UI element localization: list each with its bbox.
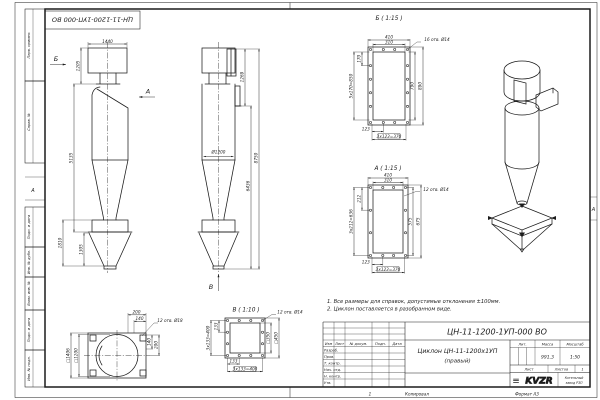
view-v-title: В ( 1:10 ) [232, 308, 259, 314]
tb-sheet-label: Лист [523, 368, 534, 372]
plan-view: 200 140 □1406 □1200 140 200 12 отв. Ø18 [66, 310, 183, 381]
tb-row-prov: Пров. [324, 355, 334, 359]
dim-front-bunker-height: 1810 [57, 237, 62, 248]
dim-side-total-height: 8750 [254, 152, 259, 163]
sheet-frame: А А 1 Копировал Формат А3 [15, 3, 597, 398]
dim-side-diameter: Ø1200 [211, 150, 226, 155]
tb-sheets-label: Листов [554, 368, 568, 372]
dim-plan-right-2: 200 [154, 341, 159, 349]
dim-b-outer-height: 890 [418, 82, 423, 90]
dim-front-cone-height: 1305 [78, 244, 83, 255]
view-v-holes-note: 12 отв. Ø14 [277, 310, 303, 315]
logo-text: KVZR [525, 377, 552, 387]
title-block: Изм Лист № докум. Подп. Дата Разраб. Про… [323, 322, 590, 387]
gost-drawing: А А 1 Копировал Формат А3 ЦН-11-1200-1УП… [0, 0, 600, 400]
dim-v-pitch-bottom-total: 3х133=400 [233, 367, 258, 372]
tb-header-list: Лист [334, 342, 345, 346]
stamp-doc-number: ЦН-11-1200-1УП-000 ВО [52, 16, 133, 24]
tb-company-line-2: завод РЗП [565, 381, 583, 385]
note-line-1: 1. Все размеры для справок, допустимые о… [327, 299, 500, 305]
view-arrow-b-label: Б [54, 55, 59, 63]
copy-label: Копировал [405, 392, 429, 397]
section-a-title: А ( 1:15 ) [373, 166, 401, 172]
section-a-holes-note: 12 отв. Ø14 [423, 187, 449, 192]
tb-row-nachotd: Нач. отд. [324, 368, 341, 372]
margin-field-perv-primen: Перв. примен. [27, 32, 31, 59]
margin-field-podp-data-1: Подп. и дата [27, 215, 31, 239]
margin-field-inv-dubl: Инв. № дубл. [27, 250, 31, 275]
dim-side-lower-height: 6436 [246, 180, 251, 191]
zone-number-bottom: 1 [369, 392, 372, 397]
tb-header-data: Дата [391, 342, 401, 346]
dim-v-pitch-bottom: 133 [230, 359, 238, 364]
dim-plan-offset-1: 200 [133, 310, 141, 315]
tb-lit-label: Лит. [517, 342, 526, 346]
section-b-holes-note: 16 отв. Ø14 [424, 37, 450, 42]
tb-sheets-value: 1 [581, 368, 583, 372]
tb-row-utv: Утв. [324, 381, 332, 385]
tb-scale-value: 1:50 [570, 355, 580, 361]
view-arrow-a-label: А [145, 88, 150, 96]
dim-plan-right-1: 140 [147, 338, 152, 346]
dim-plan-square-inner: □1200 [74, 348, 79, 363]
dim-a-pitch-h: 123 [362, 259, 370, 264]
margin-field-inv-podl: Инв. № подл. [27, 356, 31, 381]
plan-holes-note: 12 отв. Ø18 [157, 318, 183, 323]
dim-plan-square-outer: □1406 [66, 348, 71, 363]
dim-a-outer-height: 675 [416, 217, 421, 225]
dim-front-body-height: 5135 [68, 152, 73, 163]
format-label: Формат А3 [515, 392, 539, 397]
dim-plan-offset-2: 140 [136, 316, 144, 321]
zone-letter-right: А [591, 207, 596, 213]
top-left-stamp: ЦН-11-1200-1УП-000 ВО [45, 11, 140, 29]
logo-icon: ≡ [512, 377, 520, 387]
tb-row-nkontr: Н. контр. [324, 374, 341, 378]
technical-notes: 1. Все размеры для справок, допустимые о… [327, 299, 500, 313]
view-v-holes [226, 319, 263, 356]
tb-scale-label: Масштаб [566, 342, 584, 346]
section-b-view: Б ( 1:15 ) 410 310 170 5х170=850 790 890… [349, 16, 450, 141]
margin-column: Перв. примен. Справ. № Подп. и дата Инв.… [25, 9, 45, 387]
dim-b-pitch-v-total: 5х170=850 [349, 73, 354, 98]
tb-doc-number: ЦН-11-1200-1УП-000 ВО [447, 328, 547, 337]
dim-b-pitch-h-total: 3х123=370 [377, 134, 402, 139]
margin-field-sprav-no: Справ. № [27, 113, 31, 131]
dim-front-top-width: 1440 [102, 39, 113, 44]
dim-a-pitch-v: 212 [357, 194, 362, 202]
dim-side-flange-height: 1269 [240, 71, 245, 82]
dim-a-pitch-h-total: 3х123=370 [376, 267, 401, 272]
section-b-title: Б ( 1:15 ) [375, 16, 402, 22]
margin-field-vzam-inv: Взам. инв. № [27, 281, 31, 306]
section-a-holes [369, 186, 406, 256]
dim-v-outer: □450 [274, 332, 279, 344]
view-arrow-v-label: В [209, 283, 214, 291]
drawing-sheet: А А 1 Копировал Формат А3 ЦН-11-1200-1УП… [0, 0, 600, 400]
note-line-2: 2. Циклон поставляется в разобранном вид… [327, 307, 452, 313]
tb-mass-value: 991,3 [541, 355, 554, 361]
tb-company-line-1: Котельный [565, 376, 584, 380]
dim-b-pitch-h: 123 [362, 126, 370, 131]
zone-letter-left: А [30, 188, 35, 194]
dim-a-inner-height: 575 [408, 217, 413, 225]
dim-a-inner-width: 310 [384, 177, 392, 182]
dim-v-inner: □350 [266, 332, 271, 344]
tb-header-dokum: № докум. [349, 342, 368, 346]
dim-b-inner-height: 790 [410, 82, 415, 90]
dim-v-pitch-left-total: 3х133=400 [206, 325, 211, 350]
view-v: В ( 1:10 ) 133 3х133=400 □350 □450 133 3… [206, 308, 303, 373]
tb-row-tkontr: Т. контр. [324, 361, 341, 365]
section-a-view: А ( 1:15 ) 410 310 212 3х212=636 575 675… [349, 166, 449, 274]
margin-field-podp-data-2: Подп. и дата [27, 318, 31, 342]
side-view: Ø1200 1269 6436 8750 В [198, 42, 260, 291]
isometric-view [488, 61, 558, 252]
tb-row-razrab: Разраб. [324, 348, 338, 352]
tb-header-podp: Подп. [375, 342, 386, 346]
dim-b-pitch-v: 170 [357, 54, 362, 62]
front-view: 1440 1205 5135 1810 1305 Б А [50, 39, 155, 273]
dim-v-pitch-left: 133 [214, 322, 219, 330]
dim-front-inlet-height: 1205 [75, 60, 80, 71]
tb-mass-label: Масса [542, 342, 553, 346]
tb-name-line-1: Циклон ЦН-11-1200х1УП [418, 348, 498, 355]
dim-a-pitch-v-total: 3х212=636 [349, 209, 354, 234]
dim-b-inner-width: 310 [385, 39, 393, 44]
tb-header-izm: Изм [325, 342, 333, 346]
section-b-holes [369, 48, 408, 123]
tb-name-line-2: (правый) [444, 359, 470, 365]
